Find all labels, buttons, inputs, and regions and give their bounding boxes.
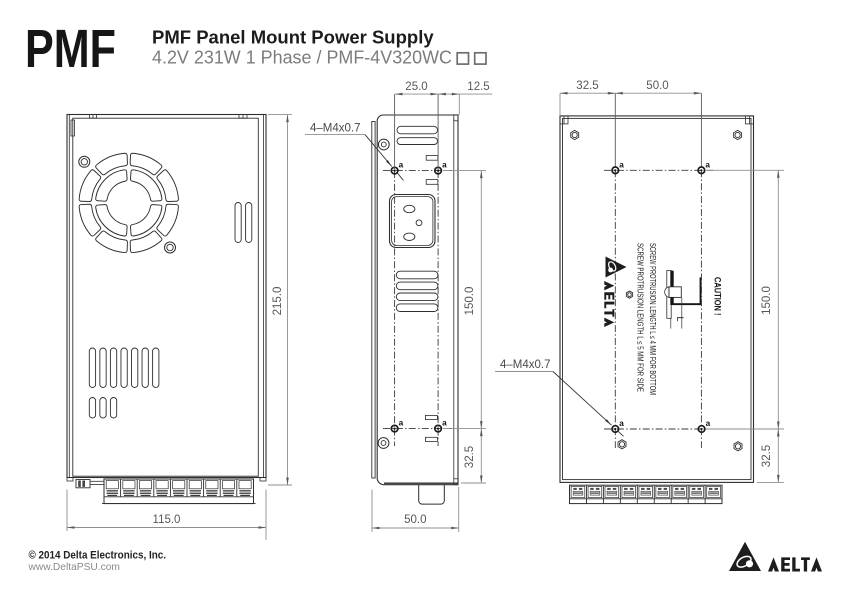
svg-text:32.5: 32.5 [761,445,773,467]
svg-text:a: a [705,160,710,169]
svg-text:CAUTION !: CAUTION ! [713,277,723,316]
svg-text:SCREW PROTRUSION LENGTH L ≤ 4: SCREW PROTRUSION LENGTH L ≤ 4 MM FOR BOT… [648,243,657,395]
svg-text:32.5: 32.5 [576,80,598,92]
svg-text:a: a [619,419,624,428]
svg-text:115.0: 115.0 [153,514,181,526]
svg-text:a: a [619,160,624,169]
svg-text:a: a [399,419,404,428]
svg-text:25.0: 25.0 [405,81,427,93]
svg-text:4–M4x0.7: 4–M4x0.7 [310,123,361,135]
svg-text:150.0: 150.0 [464,287,476,316]
svg-text:150.0: 150.0 [761,286,773,315]
svg-text:4–M4x0.7: 4–M4x0.7 [500,359,551,371]
svg-text:50.0: 50.0 [404,514,426,526]
svg-text:SCREW PROTRUSION LENGTH L ≤ 5: SCREW PROTRUSION LENGTH L ≤ 5 MM FOR SID… [636,243,645,392]
svg-text:a: a [442,161,447,170]
svg-text:215.0: 215.0 [272,287,284,316]
svg-text:PMF: PMF [25,19,116,79]
svg-text:4.2V 231W 1 Phase / PMF-4V320W: 4.2V 231W 1 Phase / PMF-4V320WC [152,47,452,68]
svg-text:12.5: 12.5 [467,81,489,93]
svg-text:50.0: 50.0 [646,80,668,92]
svg-text:a: a [706,419,711,428]
svg-text:a: a [442,419,447,428]
svg-text:L: L [675,316,685,321]
svg-text:© 2014 Delta Electronics, Inc.: © 2014 Delta Electronics, Inc. [29,550,167,562]
svg-text:a: a [399,161,404,170]
svg-text:32.5: 32.5 [464,446,476,468]
svg-text:PMF Panel Mount Power Supply: PMF Panel Mount Power Supply [152,27,434,48]
svg-text:www.DeltaPSU.com: www.DeltaPSU.com [28,562,120,573]
